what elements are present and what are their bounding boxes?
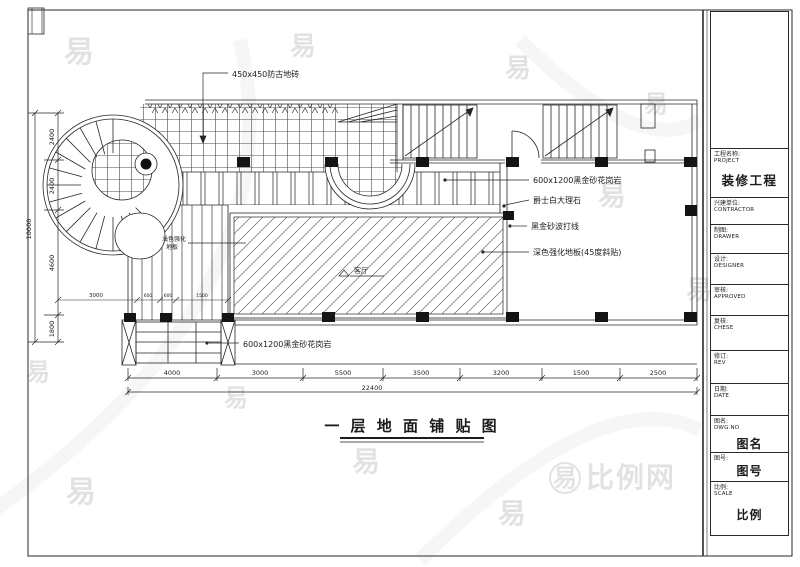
annotation-corridor-1: 浅色强化: [162, 235, 186, 243]
title-block-cell-check: 复核: CHESE: [710, 315, 789, 351]
scale-value: 比例: [714, 506, 785, 523]
dim-total-label: 10000: [25, 219, 33, 240]
dim-label: 2400: [48, 129, 56, 146]
staircase-1: [403, 105, 477, 158]
annotation-granite-bottom: 600x1200黑金砂花岗岩: [243, 339, 331, 349]
title-block-cell-approved: 审核: APPROVED: [710, 284, 789, 316]
title-block-cell-dwg-no: 图号: 图号: [710, 452, 789, 482]
annotation-tile450: 450x450防古地砖: [232, 69, 299, 79]
title-block-cell-date: 日期: DATE: [710, 383, 789, 416]
annotation-granite-top: 600x1200黑金砂花岗岩: [533, 175, 621, 185]
svg-text:一 层 地 面 铺 贴 图: 一 层 地 面 铺 贴 图: [324, 417, 499, 435]
annotation-corridor-2: 地板: [166, 243, 178, 251]
room-label: 客厅: [354, 266, 368, 275]
dim-label: 1500: [573, 369, 590, 377]
dim-total-label: 22400: [362, 384, 383, 392]
dwg-no: 图号: [714, 462, 785, 479]
dwg-name: 图名: [714, 435, 785, 452]
title-block-cell-rev: 修订: REV: [710, 350, 789, 384]
title-block-cell-dwg-name: 图名: DWG.NO 图名: [710, 415, 789, 453]
title-block-cell-scale: 比例: SCALE 比例: [710, 481, 789, 536]
staircase-2: [543, 105, 617, 158]
dim-label: 3200: [493, 369, 510, 377]
title-block-cell-contractor: 兴建单位: CONTRACTOR: [710, 197, 789, 225]
dim-label: 2400: [48, 178, 56, 195]
title-block-cell-designer: 设计: DESIGNER: [710, 253, 789, 285]
annotation-laminate: 深色强化地板(45度斜贴): [533, 247, 621, 257]
door-swing: [512, 131, 539, 158]
project-name: 装修工程: [714, 170, 785, 189]
granite-strip-band: [137, 172, 500, 205]
dim-label: 1500: [196, 293, 208, 299]
dim-label: 600: [144, 293, 153, 299]
title-block-cell-project: 工程名称: PROJECT 装修工程: [710, 148, 789, 198]
dimension-bottom-labels: 4000 3000 5500 3500 3200 1500 2500 22400: [164, 369, 667, 392]
laminate-area: [230, 213, 507, 318]
drawing-title: 一 层 地 面 铺 贴 图: [324, 417, 499, 442]
sawtooth-band: [148, 104, 338, 113]
title-block-cell-drawer: 制图: DRAWER: [710, 224, 789, 254]
dim-label: 3000: [252, 369, 269, 377]
corner-hatch-box: [28, 8, 44, 34]
dim-label: 1800: [48, 321, 56, 338]
dim-label: 600: [164, 293, 173, 299]
plan-geometry: [43, 100, 697, 365]
title-block-cell-empty: [710, 11, 789, 149]
annotation-marble: 爵士白大理石: [533, 195, 581, 205]
floor-plan: 450x450防古地砖 600x1200黑金砂花岗岩 爵士白大理石 黑金砂波打线…: [0, 0, 800, 567]
dim-label: 4600: [48, 255, 56, 272]
dim-label: 4000: [164, 369, 181, 377]
dim-label: 3000: [89, 293, 103, 299]
dim-label: 2500: [650, 369, 667, 377]
dim-label: 5500: [335, 369, 352, 377]
dim-label: 3500: [413, 369, 430, 377]
title-block: 工程名称: PROJECT 装修工程 兴建单位: CONTRACTOR 制图: …: [710, 12, 789, 536]
drawing-sheet: 易 易 易 易 易 易 易 易 易 易 易 易 易 比例网: [0, 0, 800, 567]
annotation-border-line: 黑金砂波打线: [531, 221, 579, 231]
